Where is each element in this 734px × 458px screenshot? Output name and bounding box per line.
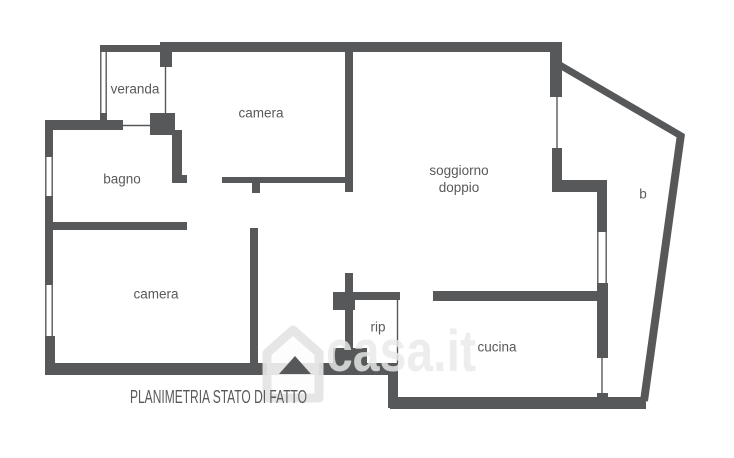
wall-bagno-top: [45, 120, 123, 130]
wall-balcony-top-slant: [558, 64, 683, 137]
room-label-bagno: bagno: [103, 171, 141, 188]
wall-bagno-right-foot: [172, 175, 187, 183]
wall-camera-top-door-jamb: [252, 183, 260, 193]
wall-soggiorno-right-top-pillar: [550, 42, 562, 97]
wall-camera-soggiorno-divider: [345, 52, 353, 192]
wall-right-mid-pillar: [597, 283, 608, 358]
wall-left-upper: [45, 120, 53, 157]
wall-veranda-top: [100, 45, 163, 52]
casa-watermark-text: casa.it: [326, 319, 476, 384]
wall-camera-bottom-right: [250, 228, 258, 368]
wall-rip-top: [353, 292, 400, 300]
room-label-rip: rip: [370, 319, 385, 336]
room-label-camera-top: camera: [238, 105, 283, 122]
room-label-balcone: b: [639, 186, 647, 203]
room-label-camera-bottom: camera: [133, 286, 178, 303]
room-label-soggiorno-doppio: soggiorno doppio: [419, 162, 499, 196]
wall-hall-top: [45, 222, 187, 230]
floor-plan-drawing: casa.it PLANIMETRIA STATO DI FATTO: [0, 0, 734, 458]
plan-caption: PLANIMETRIA STATO DI FATTO: [130, 387, 307, 407]
room-label-veranda: veranda: [111, 81, 160, 98]
wall-cucina-top: [433, 291, 597, 301]
wall-veranda-right-head: [160, 42, 172, 67]
wall-camera-bottom-exterior: [45, 363, 260, 375]
wall-right-upper: [597, 180, 607, 232]
wall-left-mid: [45, 196, 53, 285]
wall-bagno-right: [172, 130, 182, 177]
wall-rip-left-top-block: [333, 292, 355, 310]
room-label-cucina: cucina: [477, 339, 516, 356]
floor-plan-canvas: casa.it PLANIMETRIA STATO DI FATTO veran…: [0, 0, 734, 458]
wall-balcony-right-slant: [644, 134, 681, 401]
wall-veranda-right-sill: [150, 113, 175, 135]
wall-main-top: [163, 42, 562, 52]
wall-right-foot: [597, 393, 608, 407]
wall-camera-top-bottom: [222, 177, 347, 183]
